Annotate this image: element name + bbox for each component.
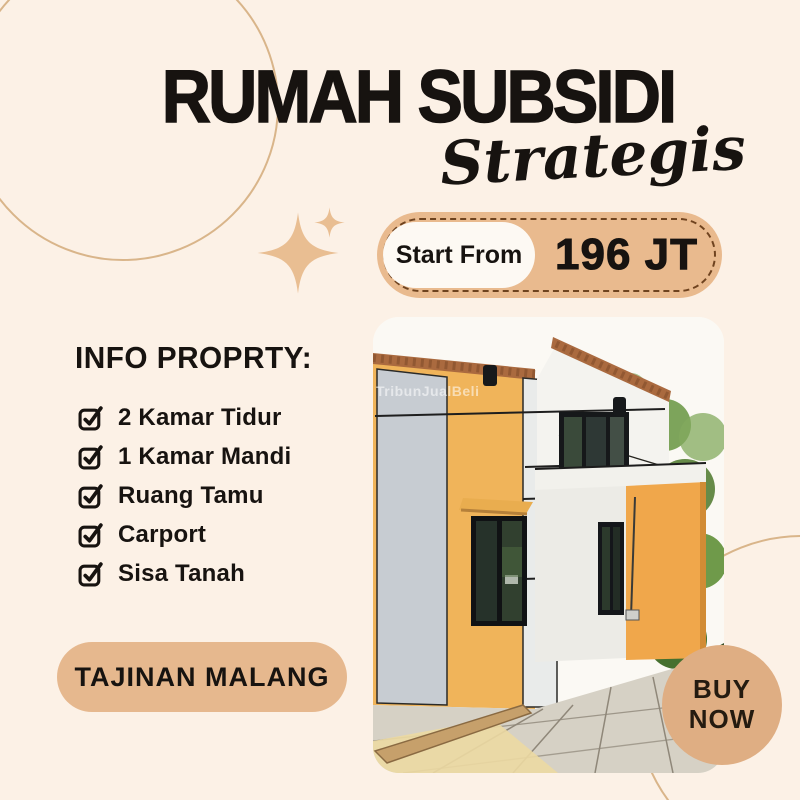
price-value: 196 JT xyxy=(543,212,710,298)
checkbox-check-icon xyxy=(78,443,105,470)
feature-label: Sisa Tanah xyxy=(118,560,245,588)
wall-lamp xyxy=(613,397,626,416)
poster-canvas: RUMAH SUBSIDI Strategis Start From 196 J… xyxy=(0,0,800,800)
list-item: Sisa Tanah xyxy=(78,554,378,593)
buy-now-line2: NOW xyxy=(689,705,756,735)
buy-now-line1: BUY xyxy=(693,675,751,705)
wall-lamp xyxy=(483,365,497,386)
sparkle-icon xyxy=(313,206,346,239)
feature-label: 2 Kamar Tidur xyxy=(118,404,282,432)
checkbox-check-icon xyxy=(78,560,105,587)
buy-now-button[interactable]: BUY NOW xyxy=(662,645,782,765)
checkbox-check-icon xyxy=(78,521,105,548)
checkbox-check-icon xyxy=(78,482,105,509)
list-item: 2 Kamar Tidur xyxy=(78,398,378,437)
carport xyxy=(535,463,706,662)
info-heading: INFO PROPRTY: xyxy=(75,340,312,376)
list-item: 1 Kamar Mandi xyxy=(78,437,378,476)
checkbox-check-icon xyxy=(78,404,105,431)
list-item: Ruang Tamu xyxy=(78,476,378,515)
start-from-pill: Start From xyxy=(383,222,535,288)
start-from-label: Start From xyxy=(396,241,522,270)
location-pill: TAJINAN MALANG xyxy=(57,642,347,712)
price-badge: Start From 196 JT xyxy=(377,212,722,298)
feature-label: 1 Kamar Mandi xyxy=(118,443,291,471)
feature-label: Ruang Tamu xyxy=(118,482,264,510)
poster-title: RUMAH SUBSIDI xyxy=(50,60,786,134)
property-feature-list: 2 Kamar Tidur 1 Kamar Mandi Ruang Tamu C… xyxy=(78,398,378,593)
watermark: TribunJualBeli xyxy=(376,383,479,399)
list-item: Carport xyxy=(78,515,378,554)
feature-label: Carport xyxy=(118,521,206,549)
